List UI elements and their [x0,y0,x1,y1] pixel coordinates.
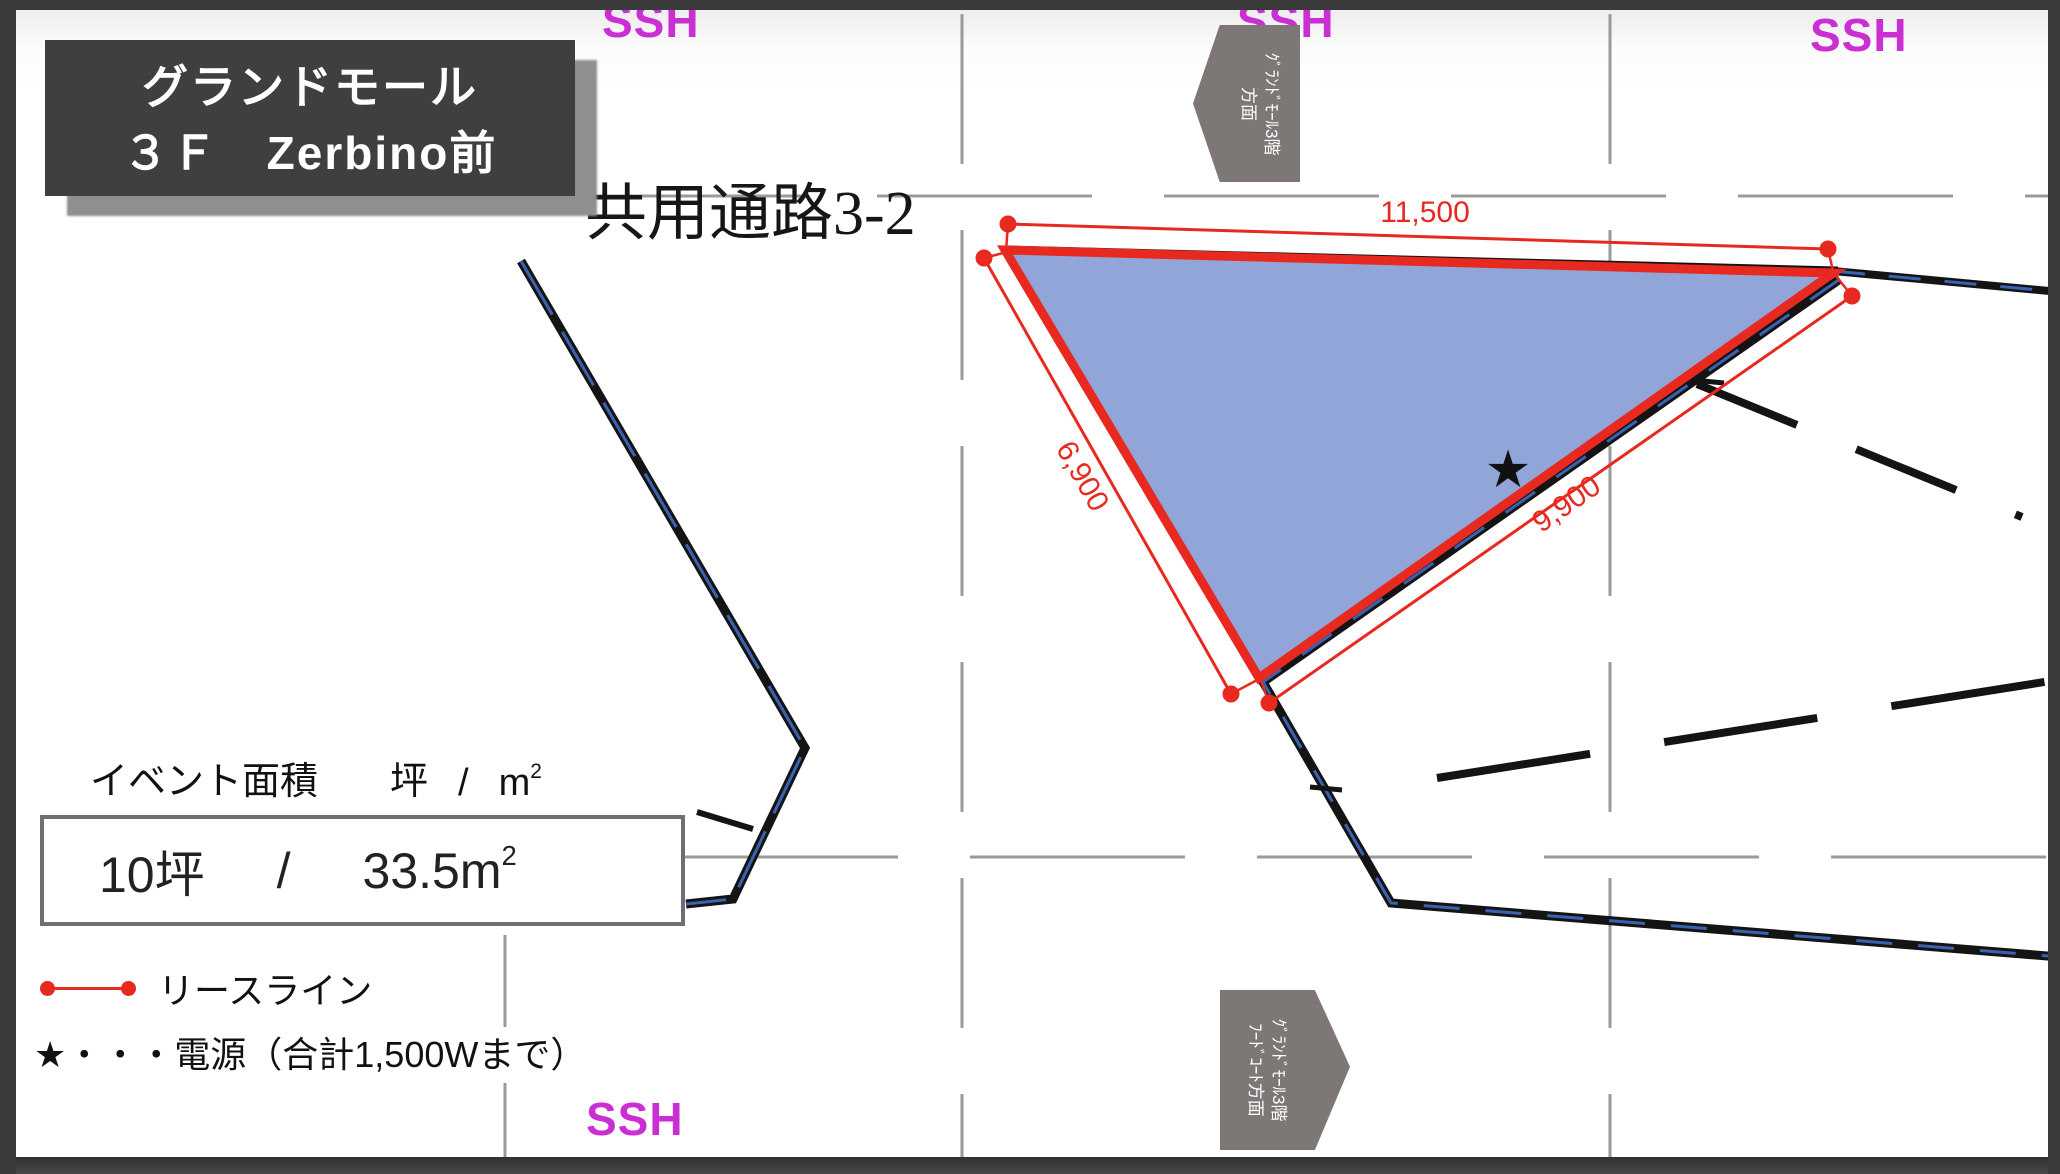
unit-tsubo-label: 坪 [390,750,428,805]
frame-border-bottom [0,1157,2060,1174]
ssh-label-bottom: SSH [586,1092,684,1146]
lease-line-label: リースライン [158,962,372,1014]
frame-border-left [0,0,16,1174]
sign-bottom-line2: ﾌｰﾄﾞｺｰﾄ方面 [1244,1019,1267,1122]
event-area-heading: イベント面積 坪 / m2 [90,750,542,805]
legend-power: ★・・・電源（合計1,500Wまで） [34,1026,586,1078]
floorplan-page: 11,500 6,900 9,900 ★ SSH SSH SSH SSH 共用通… [0,0,2060,1174]
sign-bottom-line1: ｸﾞﾗﾝﾄﾞﾓｰﾙ3階 [1267,1019,1290,1122]
title-line2: ３Ｆ Zerbino前 [45,120,575,186]
legend-lease-line: リースライン [40,962,372,1014]
unit-slash: / [458,762,469,805]
lease-area-triangle[interactable] [1005,250,1833,678]
area-value-tsubo: 10坪 [99,835,205,907]
sign-top-line1: ｸﾞﾗﾝﾄﾞﾓｰﾙ3階 [1260,52,1283,155]
frame-border-top [0,0,2060,10]
title-card: グランドモール ３Ｆ Zerbino前 [45,40,575,196]
corridor-label: 共用通路3-2 [585,183,916,245]
sign-top-line2: 方面 [1237,52,1260,155]
lease-line-icon [40,981,136,996]
ssh-label-top-right: SSH [1810,8,1908,62]
power-star-icon: ★ [1485,441,1532,499]
left-wall [521,261,805,904]
area-value-m2: 33.5m2 [363,842,517,900]
title-line1: グランドモール [45,54,575,120]
dimension-label-top: 11,500 [1380,196,1470,229]
unit-m2-label: m2 [499,762,542,805]
frame-border-right [2048,0,2060,1174]
dimension-label-left: 6,900 [1049,435,1115,517]
event-area-title: イベント面積 [90,750,318,805]
event-area-value-box: 10坪 / 33.5m2 [40,815,685,926]
area-value-slash: / [277,842,291,900]
